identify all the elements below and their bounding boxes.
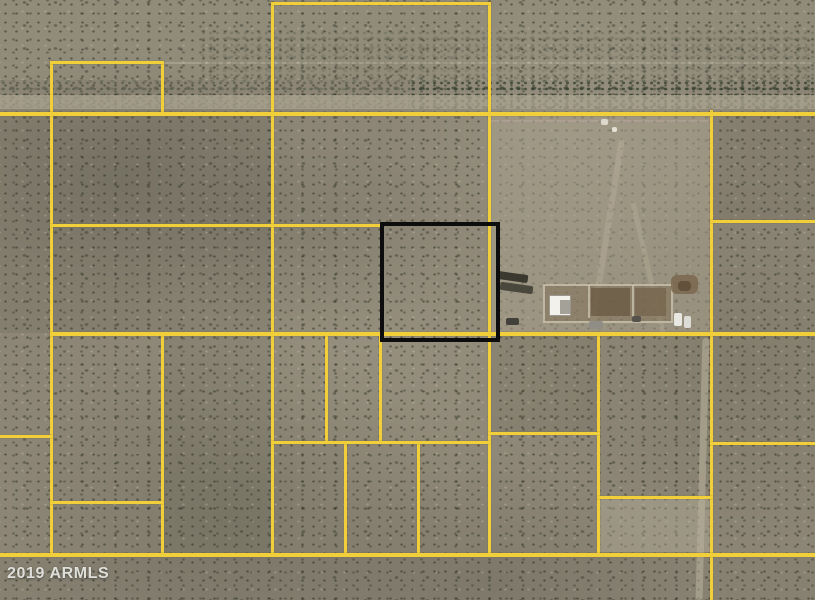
parcel-boundary-line-horizontal — [50, 61, 164, 64]
corral-fence-inner2 — [632, 285, 634, 318]
vegetation-band-right — [410, 80, 815, 109]
terrain-left-dark — [0, 114, 273, 333]
terrain-midleft-dark — [163, 333, 273, 553]
light-patch-parcel — [599, 498, 711, 552]
parcel-boundary-line-horizontal — [710, 442, 815, 445]
parcel-boundary-line-vertical — [271, 2, 274, 554]
terrain-right-top-dark — [710, 114, 815, 221]
parcel-boundary-line-vertical — [50, 61, 53, 554]
vegetation-band-left — [0, 80, 410, 108]
parcel-boundary-line-vertical — [161, 61, 164, 114]
parcel-boundary-line-vertical — [344, 441, 347, 554]
parcel-boundary-line-horizontal — [0, 112, 815, 116]
parcel-boundary-line-horizontal — [50, 501, 164, 504]
parcel-boundary-line-vertical — [161, 332, 164, 554]
brown-patch-core — [678, 281, 691, 291]
corral-dirt-dark-1 — [591, 288, 630, 316]
terrain-bottom-strip — [0, 554, 815, 600]
vegetation-scatter-top — [200, 30, 815, 80]
dirt-track-yard-2 — [630, 201, 666, 339]
parcel-boundary-line-horizontal — [488, 432, 600, 435]
terrain-mottle-texture — [0, 0, 815, 600]
satellite-parcel-map: 2019 ARMLS — [0, 0, 815, 600]
terrain-noise-texture — [0, 0, 815, 600]
parcel-boundary-line-horizontal — [50, 332, 815, 336]
parcel-boundary-line-vertical — [379, 333, 382, 443]
parcel-boundary-line-vertical — [597, 332, 600, 554]
parcel-boundary-line-vertical — [488, 2, 491, 554]
parcel-boundary-line-vertical — [417, 441, 420, 554]
parcel-boundary-line-vertical — [710, 110, 713, 600]
white-roof-building — [549, 295, 571, 316]
parcel-boundary-line-horizontal — [271, 441, 491, 444]
vegetation-layer — [0, 0, 815, 600]
terrain-top-band — [0, 0, 815, 80]
dirt-track-right — [696, 338, 710, 600]
dark-trailer-2 — [500, 282, 534, 295]
parcel-boundary-line-horizontal — [0, 553, 815, 557]
vehicle-dark-2 — [632, 316, 641, 322]
vehicle-grey — [589, 321, 603, 329]
parcel-boundary-line-horizontal — [271, 2, 491, 5]
terrain-center-green — [489, 333, 598, 432]
road-band — [0, 95, 815, 109]
dirt-track-yard-1 — [589, 139, 625, 328]
corral-dirt-dark-2 — [635, 288, 666, 316]
highlighted-parcel-outline — [380, 222, 500, 342]
vehicle-dark-1 — [506, 318, 519, 325]
parcel-boundary-line-horizontal — [50, 224, 384, 227]
yard-smooth — [490, 114, 711, 333]
corral-fence — [543, 284, 673, 323]
terrain-overlay-layer — [0, 0, 815, 600]
white-speck-1 — [601, 119, 608, 125]
vehicle-white-2 — [684, 316, 691, 328]
white-speck-2 — [612, 127, 617, 132]
armls-watermark: 2019 ARMLS — [7, 565, 109, 583]
corral-fence-inner1 — [588, 285, 590, 318]
building-shadow — [560, 300, 570, 314]
parcel-boundary-line-vertical — [325, 332, 328, 443]
brown-ground-patch — [671, 275, 698, 294]
parcel-boundary-line-horizontal — [710, 220, 815, 223]
parcel-boundary-line-horizontal — [0, 435, 53, 438]
parcel-boundaries-layer — [0, 0, 815, 600]
terrain-underlay-layer — [0, 0, 815, 600]
vehicle-white-1 — [674, 313, 682, 326]
dark-trailer-1 — [497, 271, 529, 283]
section-scar-line — [163, 62, 813, 64]
yard-scar-line — [491, 120, 710, 122]
structures-layer — [0, 0, 815, 600]
parcel-boundary-line-horizontal — [597, 496, 713, 499]
